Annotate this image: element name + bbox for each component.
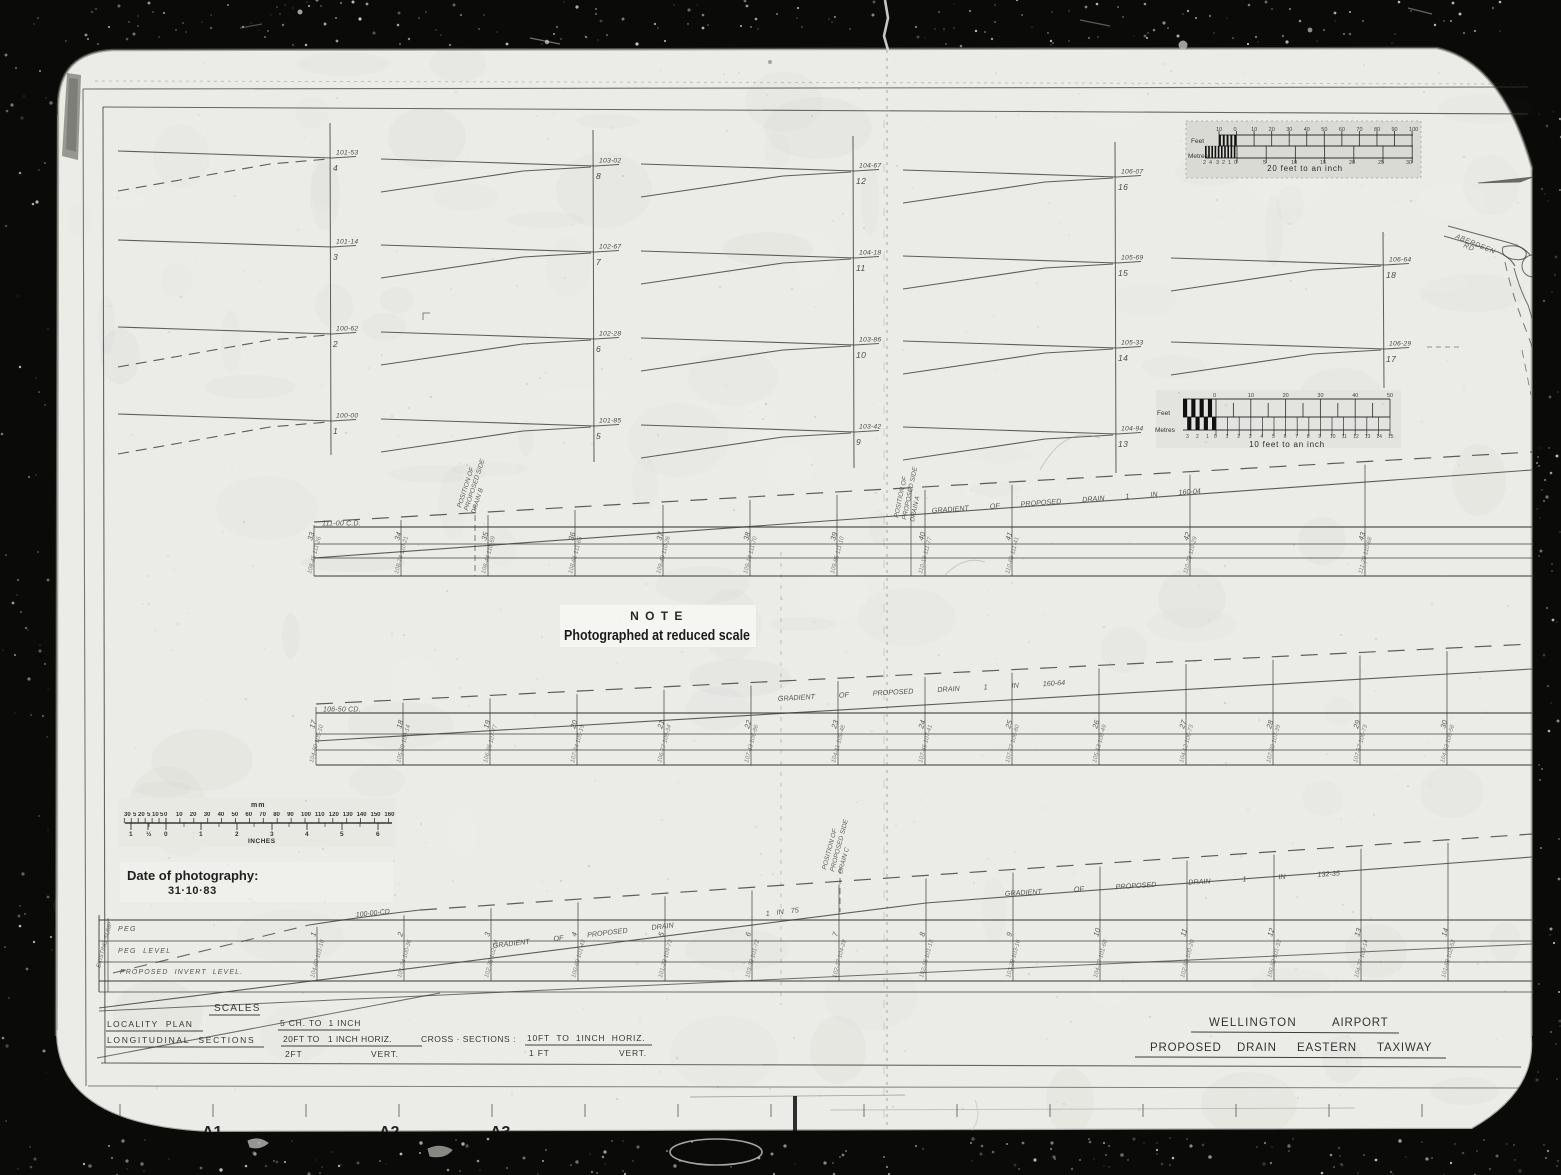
svg-text:40: 40 — [218, 812, 225, 818]
svg-text:102-28: 102-28 — [599, 331, 621, 338]
svg-text:3: 3 — [270, 831, 274, 838]
svg-text:14: 14 — [1376, 434, 1382, 440]
svg-text:N O T E: N O T E — [630, 609, 684, 623]
svg-text:2: 2 — [1222, 160, 1225, 166]
svg-text:106-29: 106-29 — [1389, 341, 1411, 348]
svg-text:CROSS · SECTIONS :: CROSS · SECTIONS : — [421, 1034, 516, 1044]
svg-text:10: 10 — [1248, 393, 1254, 399]
svg-text:101-14: 101-14 — [336, 239, 358, 246]
svg-text:1: 1 — [199, 831, 203, 838]
svg-text:30: 30 — [1406, 160, 1412, 166]
svg-text:Metres: Metres — [1155, 427, 1176, 434]
svg-text:0: 0 — [164, 831, 168, 838]
svg-text:20FT TO 1 INCH HORIZ.: 20FT TO 1 INCH HORIZ. — [283, 1034, 392, 1044]
svg-text:103-86: 103-86 — [859, 337, 881, 344]
svg-text:LONGITUDINAL SECTIONS: LONGITUDINAL SECTIONS — [107, 1035, 255, 1045]
svg-text:40: 40 — [1304, 127, 1310, 133]
svg-text:100-62: 100-62 — [336, 326, 358, 333]
svg-text:10FT TO 1INCH HORIZ.: 10FT TO 1INCH HORIZ. — [527, 1033, 645, 1043]
svg-text:Metres: Metres — [1188, 153, 1209, 160]
svg-text:15: 15 — [1388, 434, 1394, 440]
svg-text:106-64: 106-64 — [1389, 257, 1411, 264]
svg-text:PROPOSED INVERT LEVEL.: PROPOSED INVERT LEVEL. — [120, 969, 243, 976]
svg-text:106-07: 106-07 — [1121, 169, 1143, 176]
svg-text:2: 2 — [1196, 434, 1199, 440]
svg-text:0: 0 — [1214, 434, 1217, 440]
svg-text:60: 60 — [1339, 127, 1345, 133]
svg-text:80: 80 — [1374, 127, 1380, 133]
svg-text:16: 16 — [1118, 182, 1128, 192]
svg-text:2: 2 — [1237, 434, 1240, 440]
svg-text:50: 50 — [1321, 127, 1327, 133]
svg-text:3: 3 — [1186, 434, 1189, 440]
svg-text:8: 8 — [596, 171, 601, 181]
svg-text:30: 30 — [1317, 393, 1323, 399]
svg-text:15: 15 — [1118, 268, 1128, 278]
svg-text:4: 4 — [333, 163, 338, 173]
svg-text:20: 20 — [1349, 160, 1355, 166]
svg-text:50: 50 — [1387, 393, 1393, 399]
svg-text:10 feet to an inch: 10 feet to an inch — [1249, 440, 1325, 449]
svg-text:Feet: Feet — [1191, 138, 1204, 145]
svg-text:2: 2 — [332, 339, 338, 349]
svg-text:120: 120 — [329, 812, 340, 818]
svg-text:10: 10 — [152, 812, 159, 818]
svg-text:mm: mm — [251, 802, 265, 809]
svg-text:2: 2 — [1203, 160, 1206, 166]
svg-text:105-69: 105-69 — [1121, 255, 1143, 262]
svg-text:18: 18 — [1386, 270, 1396, 280]
svg-text:LOCALITY PLAN: LOCALITY PLAN — [107, 1019, 193, 1029]
svg-text:14: 14 — [1118, 353, 1128, 363]
svg-text:PROPOSED: PROPOSED — [1150, 1042, 1222, 1054]
svg-text:2: 2 — [235, 831, 239, 838]
svg-text:1: 1 — [1228, 160, 1231, 166]
svg-text:13: 13 — [1118, 439, 1128, 449]
svg-text:12: 12 — [1353, 434, 1359, 440]
svg-text:100-00: 100-00 — [336, 413, 358, 420]
svg-text:1: 1 — [129, 831, 133, 838]
svg-text:2FT: 2FT — [285, 1049, 303, 1059]
svg-text:130: 130 — [343, 812, 354, 818]
svg-text:25: 25 — [1378, 160, 1384, 166]
svg-text:1: 1 — [333, 426, 338, 436]
svg-text:VERT.: VERT. — [371, 1049, 399, 1059]
svg-text:104-67: 104-67 — [859, 163, 881, 170]
svg-text:150: 150 — [371, 812, 382, 818]
svg-text:102-67: 102-67 — [599, 244, 621, 251]
svg-text:0: 0 — [1234, 127, 1237, 133]
svg-text:101-53: 101-53 — [336, 150, 358, 157]
svg-text:4: 4 — [1209, 160, 1212, 166]
svg-text:20 feet to an inch: 20 feet to an inch — [1267, 164, 1343, 173]
svg-text:11: 11 — [1342, 434, 1347, 440]
svg-text:104-94: 104-94 — [1121, 426, 1143, 433]
svg-text:90: 90 — [1392, 127, 1398, 133]
svg-text:104-18: 104-18 — [859, 250, 881, 257]
svg-text:1 FT: 1 FT — [529, 1048, 550, 1058]
svg-text:PEG LEVEL: PEG LEVEL — [118, 948, 171, 955]
svg-text:0: 0 — [1234, 160, 1237, 166]
svg-text:70: 70 — [1356, 127, 1362, 133]
svg-text:4: 4 — [305, 831, 309, 838]
svg-text:30: 30 — [204, 812, 211, 818]
svg-text:0: 0 — [1213, 393, 1216, 399]
svg-text:10: 10 — [1330, 434, 1336, 440]
svg-text:3: 3 — [333, 252, 338, 262]
svg-text:INCHES: INCHES — [248, 838, 276, 845]
svg-text:6: 6 — [596, 344, 601, 354]
svg-text:10: 10 — [856, 350, 866, 360]
svg-text:DRAIN: DRAIN — [1237, 1042, 1277, 1054]
svg-text:103-42: 103-42 — [859, 424, 881, 431]
svg-text:106-50 CD.: 106-50 CD. — [323, 707, 361, 714]
svg-text:30: 30 — [1286, 127, 1292, 133]
svg-text:TAXIWAY: TAXIWAY — [1377, 1042, 1432, 1054]
svg-text:1: 1 — [1226, 434, 1229, 440]
svg-text:31·10·83: 31·10·83 — [168, 885, 217, 897]
svg-text:5: 5 — [596, 431, 601, 441]
svg-text:1: 1 — [1206, 434, 1209, 440]
svg-text:80: 80 — [273, 812, 280, 818]
svg-text:40: 40 — [1352, 393, 1358, 399]
svg-text:100: 100 — [301, 812, 312, 818]
svg-text:5 CH. TO 1 INCH: 5 CH. TO 1 INCH — [280, 1018, 361, 1028]
svg-text:11: 11 — [856, 263, 866, 273]
svg-text:103-02: 103-02 — [599, 158, 621, 165]
svg-text:½: ½ — [146, 830, 152, 838]
svg-text:10: 10 — [1216, 127, 1222, 133]
svg-text:110: 110 — [315, 812, 325, 818]
svg-text:20: 20 — [190, 812, 197, 818]
svg-text:60: 60 — [245, 812, 252, 818]
svg-text:70: 70 — [259, 812, 266, 818]
svg-text:3: 3 — [1216, 160, 1219, 166]
svg-text:AIRPORT: AIRPORT — [1332, 1017, 1389, 1029]
svg-text:90: 90 — [287, 812, 294, 818]
svg-text:13: 13 — [1365, 434, 1371, 440]
svg-text:10: 10 — [176, 812, 183, 818]
svg-text:50: 50 — [232, 812, 239, 818]
svg-text:5: 5 — [1263, 160, 1266, 166]
svg-text:12: 12 — [856, 176, 866, 186]
svg-text:20: 20 — [1269, 127, 1275, 133]
svg-text:9: 9 — [856, 437, 861, 447]
svg-text:20: 20 — [1283, 393, 1289, 399]
svg-text:101-85: 101-85 — [599, 418, 621, 425]
svg-text:SCALES: SCALES — [214, 1003, 261, 1014]
svg-text:105-33: 105-33 — [1121, 340, 1143, 347]
svg-text:Date of photography:: Date of photography: — [127, 868, 258, 883]
svg-text:Photographed at reduced scale: Photographed at reduced scale — [564, 628, 750, 644]
svg-text:VERT.: VERT. — [619, 1048, 647, 1058]
svg-text:PEG: PEG — [118, 926, 137, 933]
svg-text:140: 140 — [357, 812, 368, 818]
svg-text:Feet: Feet — [1157, 410, 1170, 417]
svg-text:WELLINGTON: WELLINGTON — [1209, 1017, 1297, 1029]
svg-text:7: 7 — [596, 257, 601, 267]
svg-text:17: 17 — [1386, 354, 1396, 364]
svg-text:5: 5 — [340, 831, 344, 838]
svg-text:100: 100 — [1409, 127, 1418, 133]
svg-text:111-00 C.D.: 111-00 C.D. — [322, 521, 361, 528]
svg-text:6: 6 — [376, 831, 380, 838]
svg-text:160: 160 — [384, 812, 395, 818]
svg-text:20: 20 — [138, 812, 145, 818]
svg-text:10: 10 — [1251, 127, 1257, 133]
svg-text:EASTERN: EASTERN — [1297, 1042, 1357, 1054]
svg-text:30: 30 — [124, 812, 131, 818]
